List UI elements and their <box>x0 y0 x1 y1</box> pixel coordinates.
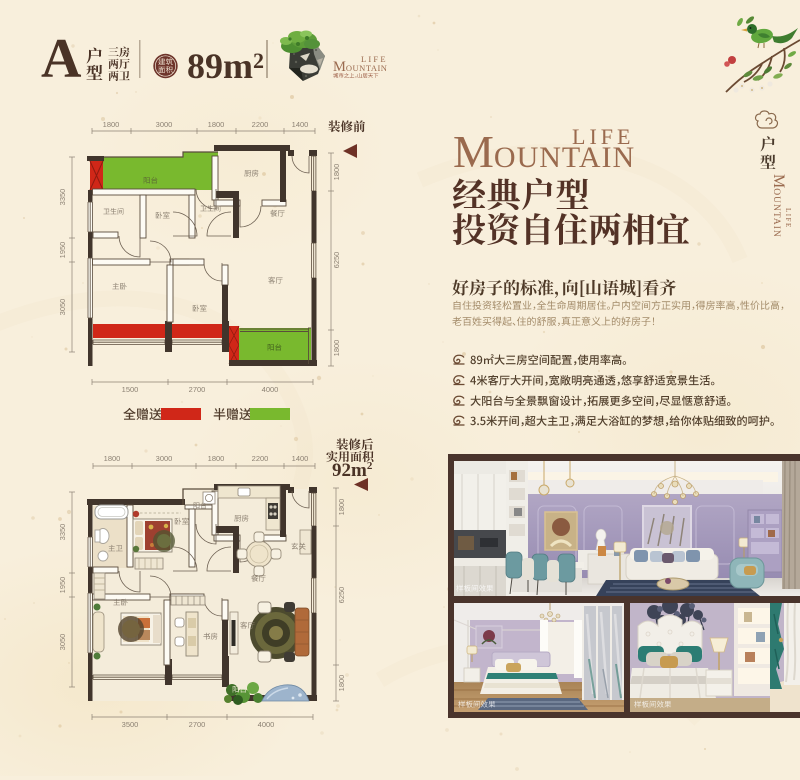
svg-text:1400: 1400 <box>292 454 309 463</box>
svg-text:3050: 3050 <box>58 634 67 651</box>
svg-text:92m2: 92m2 <box>332 460 373 481</box>
svg-text:1950: 1950 <box>58 577 67 594</box>
svg-text:2200: 2200 <box>252 454 269 463</box>
svg-text:6250: 6250 <box>337 587 346 604</box>
svg-text:3500: 3500 <box>122 720 139 729</box>
svg-text:1800: 1800 <box>208 454 225 463</box>
svg-text:2700: 2700 <box>189 720 206 729</box>
svg-text:1800: 1800 <box>104 454 121 463</box>
svg-text:1800: 1800 <box>337 499 346 516</box>
svg-text:3000: 3000 <box>156 454 173 463</box>
svg-text:1800: 1800 <box>337 675 346 692</box>
svg-text:4000: 4000 <box>258 720 275 729</box>
svg-text:3350: 3350 <box>58 524 67 541</box>
